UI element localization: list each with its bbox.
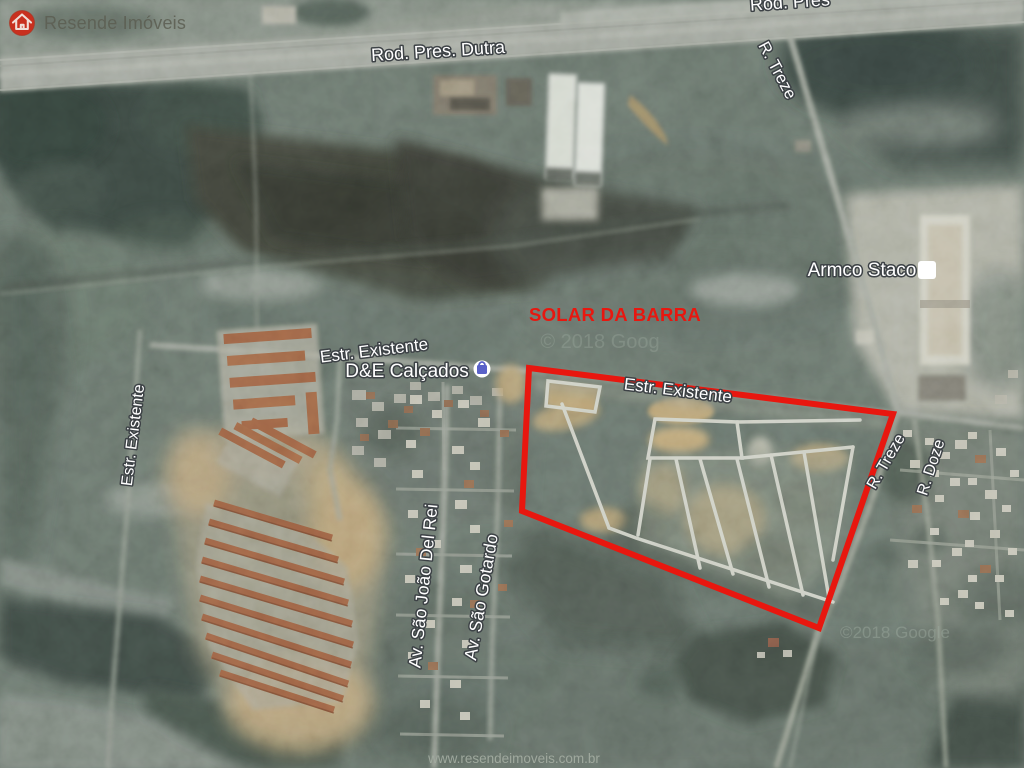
svg-text:SOLAR DA BARRA: SOLAR DA BARRA: [529, 304, 701, 325]
svg-text:© 2018 Goog: © 2018 Goog: [540, 331, 659, 353]
svg-text:Armco Staco: Armco Staco: [808, 260, 917, 281]
svg-text:D&E Calçados: D&E Calçados: [345, 361, 469, 382]
svg-text:Resende Imóveis: Resende Imóveis: [44, 13, 186, 33]
svg-text:www.resendeimoveis.com.br: www.resendeimoveis.com.br: [427, 751, 600, 766]
svg-text:©2018 Google: ©2018 Google: [840, 623, 950, 642]
